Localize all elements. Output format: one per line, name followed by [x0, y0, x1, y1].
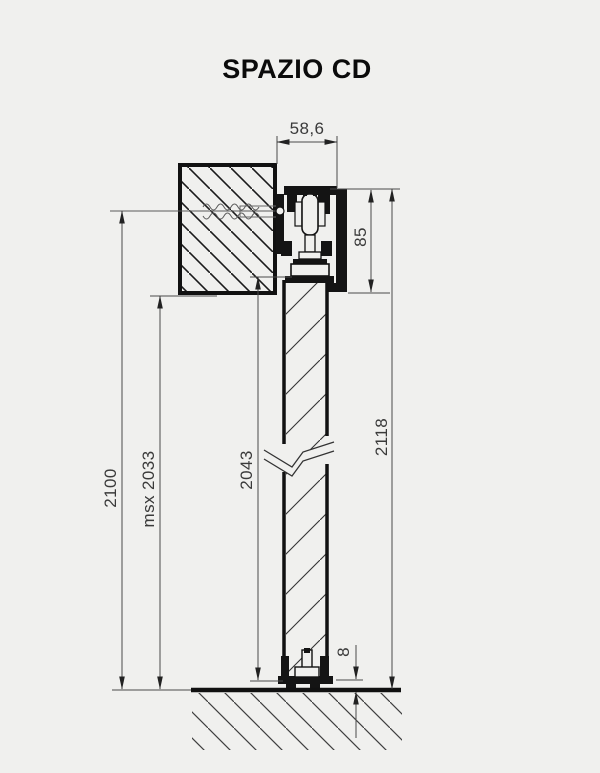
floor — [112, 690, 402, 750]
clamp-body — [291, 264, 329, 276]
fascia-cover — [336, 189, 347, 285]
dim-door-height: 2043 — [237, 277, 258, 680]
dim-label-2100: 2100 — [101, 468, 120, 507]
door-clamp — [285, 259, 334, 283]
track-lower-left-flange — [281, 241, 292, 256]
guide-pin-cap — [304, 648, 310, 653]
roller-cheek-left — [295, 202, 302, 226]
roller-cheek-right — [318, 202, 325, 226]
track-assembly — [276, 186, 347, 292]
dim-label-85: 85 — [351, 227, 370, 247]
fascia-screw-dot — [331, 259, 336, 264]
dim-total-height: 2118 — [372, 189, 392, 689]
dim-label-2043: 2043 — [237, 450, 256, 489]
dim-label-msx-2033: msx 2033 — [139, 451, 158, 528]
screw-head-icon — [276, 207, 284, 215]
door-top-cap — [285, 276, 334, 283]
wall-section — [110, 165, 283, 293]
guide-pin-flange — [295, 667, 319, 677]
bolt-nut — [299, 252, 321, 259]
dim-track-width: 58,6 — [277, 119, 337, 142]
spazio-cd-section-drawing: SPAZIO CD — [0, 0, 600, 773]
dim-label-2118: 2118 — [372, 418, 391, 456]
wheel-nub-left — [303, 192, 307, 196]
hanger-bolt — [299, 235, 321, 259]
technical-drawing-page: SPAZIO CD — [0, 0, 600, 773]
dim-header-height: 85 — [351, 190, 371, 292]
bolt-shaft — [305, 235, 315, 252]
dim-label-58-6: 58,6 — [290, 119, 325, 138]
dim-label-8: 8 — [334, 647, 353, 657]
door-hatched-core — [286, 283, 326, 674]
wall-hatched-block — [180, 165, 275, 293]
drawing-title: SPAZIO CD — [222, 54, 372, 84]
dim-max-height: msx 2033 — [139, 296, 160, 689]
wheel-nub-right — [313, 192, 317, 196]
fascia-hook — [327, 283, 347, 292]
ground-hatch — [192, 693, 402, 750]
dim-opening-height: 2100 — [101, 211, 122, 689]
wheel-body — [302, 194, 318, 235]
door-panel — [264, 280, 334, 676]
track-lower-right-flange — [321, 241, 332, 256]
